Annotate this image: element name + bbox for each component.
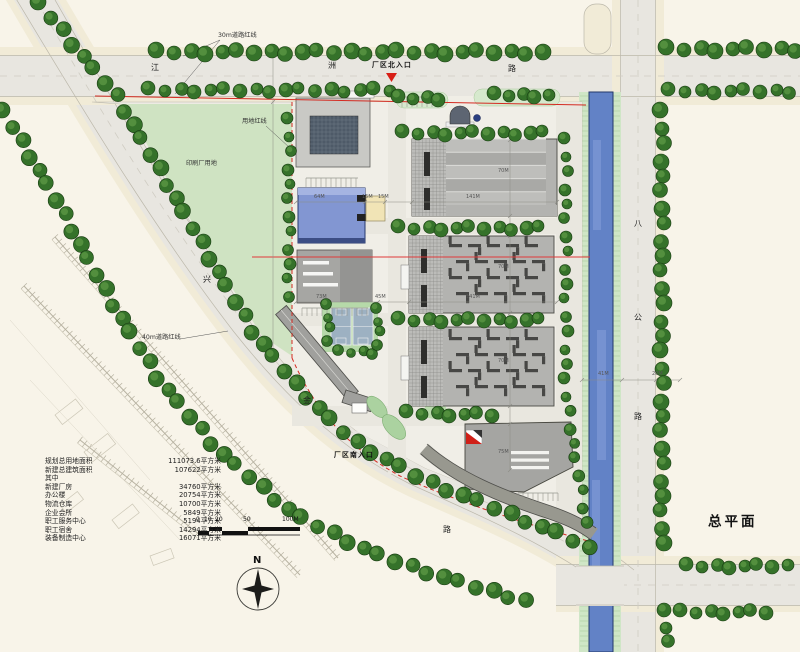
legend-value: 111073.6平方米 <box>168 458 221 465</box>
legend-label: 规划总用地面积 <box>45 458 93 465</box>
scale-tick-0: 0 <box>196 517 200 523</box>
legend-row: 其中 <box>45 475 221 482</box>
north-road-char-3: 路 <box>508 65 516 73</box>
dim-64m: 64M <box>314 195 325 200</box>
dim-141m-b: 141M <box>466 295 480 300</box>
north-gatehouse <box>450 106 470 124</box>
redline-30m-label: 30m道路红线 <box>218 33 257 39</box>
dim-73m: 73M <box>316 295 327 300</box>
scale-tick-20: 20 <box>215 517 223 523</box>
legend-row: 新建厂房34760平方米 <box>45 484 221 491</box>
scale-tick-100: 100M <box>282 517 299 523</box>
legend-label: 新建厂房 <box>45 484 72 491</box>
north-entrance-label: 厂区北入口 <box>372 62 412 69</box>
redline-40m-label: 40m道路红线 <box>142 335 181 341</box>
site-plan-canvas: 江 洲 路 八 公 路 兴 金 路 厂区北入口 厂区南入口 30m道路红线 40… <box>0 0 800 652</box>
club-building <box>298 188 365 243</box>
legend-row: 企业会所5849平方米 <box>45 510 221 517</box>
diagonal-road-char-3: 路 <box>443 526 451 534</box>
legend-row: 办公楼20754平方米 <box>45 492 221 499</box>
dim-141m-a: 141M <box>466 195 480 200</box>
dim-75m: 75M <box>498 450 509 455</box>
legend-row: 新建总建筑面积107622平方米 <box>45 467 221 474</box>
legend-row: 装备制造中心16071平方米 <box>45 535 221 542</box>
south-entrance-label: 厂区南入口 <box>334 452 374 459</box>
dim-70m-b: 70M <box>498 265 509 270</box>
legend-value: 20754平方米 <box>179 492 221 499</box>
scale-tick-10: 10 <box>204 517 212 523</box>
legend-row: 职工服务中心5194平方米 <box>45 518 221 525</box>
legend-row: 规划总用地面积111073.6平方米 <box>45 458 221 465</box>
dim-70m-a: 70M <box>498 169 509 174</box>
printing-plant-land-label: 印刷厂用地 <box>186 161 217 167</box>
legend-value: 10700平方米 <box>179 501 221 508</box>
east-road-char-1: 八 <box>634 220 642 228</box>
compass <box>237 568 279 610</box>
dim-45m: 45M <box>375 295 386 300</box>
site-redline-label: 用地红线 <box>242 119 267 125</box>
diagonal-road-char-2: 金 <box>303 397 311 405</box>
plan-title: 总平面 <box>708 516 758 530</box>
plan-drawing <box>0 0 800 652</box>
legend-label: 装备制造中心 <box>45 535 86 542</box>
east-road-char-3: 路 <box>634 413 642 421</box>
scale-tick-50: 50 <box>243 517 251 523</box>
legend-label: 其中 <box>45 475 59 482</box>
legend-value: 14294平方米 <box>179 527 221 534</box>
south-gatehouse <box>352 403 367 413</box>
dim-70m-c: 70M <box>498 359 509 364</box>
legend-value: 107622平方米 <box>175 467 221 474</box>
legend-row: 职工宿舍14294平方米 <box>45 527 221 534</box>
north-road-char-1: 江 <box>151 64 159 72</box>
legend-label: 职工宿舍 <box>45 527 72 534</box>
legend-label: 企业会所 <box>45 510 72 517</box>
legend-label: 新建总建筑面积 <box>45 467 93 474</box>
east-road-char-2: 公 <box>634 314 642 322</box>
dim-15m-b: 15M <box>378 195 389 200</box>
fountain <box>474 115 481 122</box>
legend-row: 物流仓库10700平方米 <box>45 501 221 508</box>
diagonal-road-char-1: 兴 <box>203 276 211 284</box>
dim-41m: 41M <box>598 372 609 377</box>
legend-value: 34760平方米 <box>179 484 221 491</box>
dim-20m: 20M <box>652 372 663 377</box>
north-road-char-2: 洲 <box>328 62 336 70</box>
legend-label: 物流仓库 <box>45 501 72 508</box>
printing-plant-green-land <box>120 104 292 356</box>
legend-label: 办公楼 <box>45 492 65 499</box>
compass-north-label: N <box>253 556 261 566</box>
legend-label: 职工服务中心 <box>45 518 86 525</box>
north-arrow <box>242 569 274 609</box>
dim-15m-a: 15M <box>362 195 373 200</box>
legend-value: 16071平方米 <box>179 535 221 542</box>
